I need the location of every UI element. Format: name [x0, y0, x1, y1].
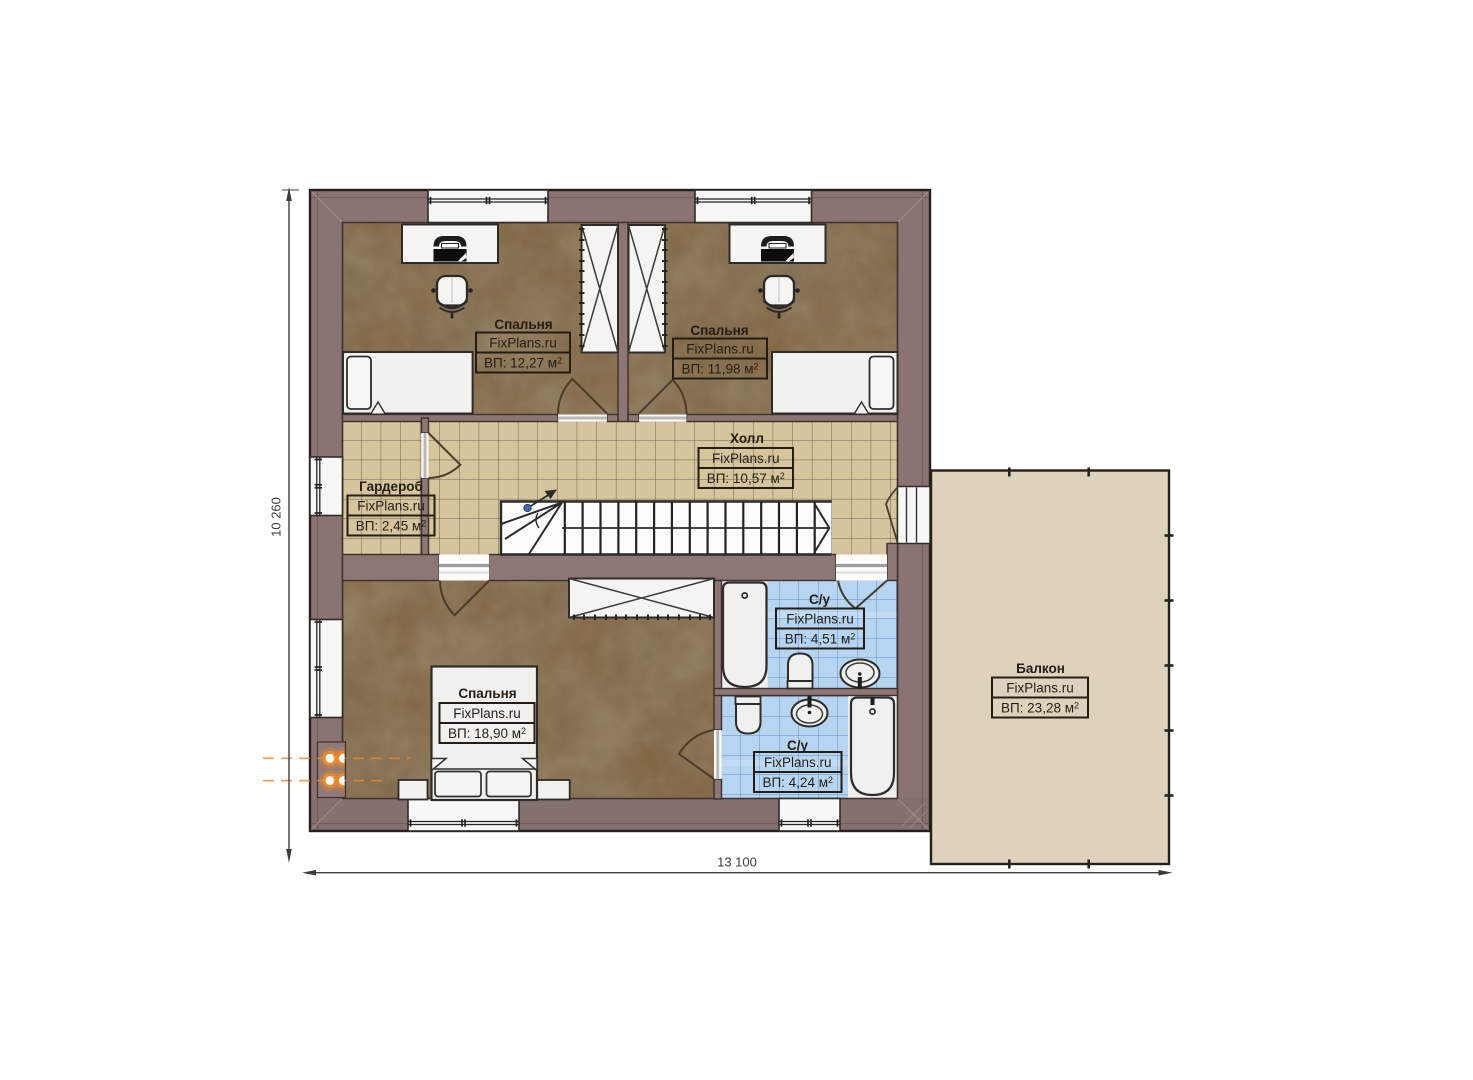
svg-text:Спальня: Спальня	[458, 686, 516, 701]
svg-text:ВП: 18,90 м2: ВП: 18,90 м2	[448, 726, 526, 741]
svg-text:FixPlans.ru: FixPlans.ru	[489, 336, 557, 351]
svg-text:FixPlans.ru: FixPlans.ru	[686, 342, 754, 357]
svg-text:FixPlans.ru: FixPlans.ru	[357, 499, 425, 514]
svg-text:ВП: 2,45 м2: ВП: 2,45 м2	[356, 519, 427, 534]
svg-text:ВП: 11,98 м2: ВП: 11,98 м2	[681, 362, 758, 377]
svg-text:Спальня: Спальня	[494, 317, 552, 332]
svg-text:FixPlans.ru: FixPlans.ru	[764, 755, 832, 770]
svg-text:FixPlans.ru: FixPlans.ru	[786, 612, 854, 627]
svg-text:Холл: Холл	[730, 431, 764, 446]
svg-text:13 100: 13 100	[717, 855, 757, 870]
svg-text:FixPlans.ru: FixPlans.ru	[712, 451, 780, 466]
svg-text:Гардероб: Гардероб	[359, 479, 423, 494]
svg-text:ВП: 4,51 м2: ВП: 4,51 м2	[785, 632, 856, 647]
svg-text:ВП: 12,27 м2: ВП: 12,27 м2	[484, 356, 562, 371]
svg-text:Балкон: Балкон	[1016, 661, 1065, 676]
svg-text:FixPlans.ru: FixPlans.ru	[1006, 681, 1074, 696]
svg-text:ВП: 23,28 м2: ВП: 23,28 м2	[1001, 701, 1079, 716]
svg-text:С/у: С/у	[809, 592, 831, 607]
svg-text:Спальня: Спальня	[690, 323, 748, 338]
svg-text:FixPlans.ru: FixPlans.ru	[453, 706, 521, 721]
svg-text:С/у: С/у	[787, 738, 809, 753]
svg-text:ВП: 10,57 м2: ВП: 10,57 м2	[707, 471, 785, 486]
svg-text:10 260: 10 260	[269, 497, 284, 537]
svg-text:ВП: 4,24 м2: ВП: 4,24 м2	[762, 775, 833, 790]
